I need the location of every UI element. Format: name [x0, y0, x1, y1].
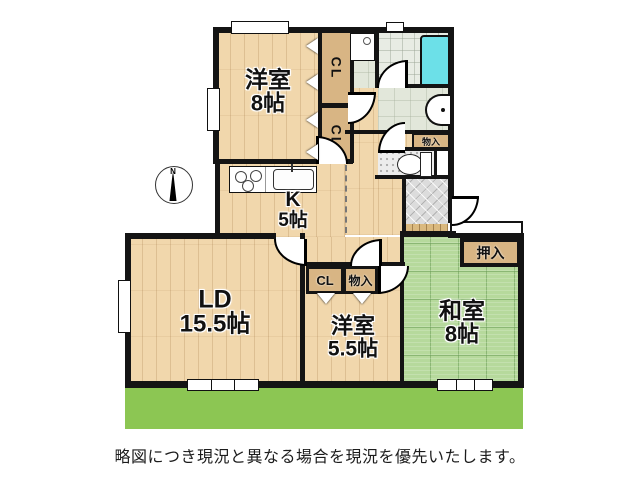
wall-yoshitsu55-washitsu	[400, 237, 404, 383]
toilet-tank	[420, 152, 432, 177]
room-size: 5帖	[278, 211, 308, 231]
hallway-floor-lower	[378, 178, 405, 235]
vanity-basin	[425, 94, 450, 126]
label-washitsu: 和室 8帖	[439, 300, 485, 347]
window-ld-bottom	[187, 379, 259, 391]
kitchen-sink	[273, 169, 314, 190]
window-tick	[474, 380, 475, 390]
window-tick	[211, 380, 212, 390]
washroom-sink	[350, 33, 375, 61]
room-name: 洋室	[328, 316, 378, 339]
folding-door-icon	[306, 144, 318, 160]
disclaimer-caption: 略図につき現況と異なる場合を現況を優先いたします。	[0, 443, 640, 467]
faucet-icon	[291, 164, 293, 172]
folding-door-icon	[306, 74, 318, 90]
closet-cl-upper-label: CL	[328, 57, 344, 80]
folding-door-icon	[306, 38, 318, 54]
storage-hall: 物入	[343, 266, 378, 294]
room-name: LD	[180, 287, 251, 313]
label-yoshitsu8: 洋室 8帖	[245, 69, 291, 116]
window-washitsu-bottom	[437, 379, 493, 391]
compass-north-label: N	[154, 167, 192, 176]
stove-burner-icon	[242, 180, 254, 192]
room-size: 8帖	[245, 93, 291, 116]
wall-storage-toilet	[403, 147, 453, 151]
closet-cl-hall: CL	[306, 266, 344, 294]
window-ld-left	[118, 280, 131, 333]
label-ld: LD 15.5帖	[180, 287, 251, 338]
drain-dot	[441, 108, 445, 112]
compass: N	[154, 165, 194, 205]
window-bath-top	[386, 22, 404, 32]
wall-washitsu-right	[518, 233, 524, 388]
closet-oshiire: 押入	[460, 238, 521, 267]
closet-cl-hall-label: CL	[309, 269, 341, 291]
window-yoshitsu8-left	[207, 88, 220, 131]
stove-divider	[265, 167, 266, 192]
window-yoshitsu8-top	[231, 21, 289, 34]
faucet-icon	[363, 37, 371, 45]
folding-door-icon	[317, 293, 335, 304]
wall-toilet-alcove	[434, 150, 437, 177]
bathtub	[420, 35, 451, 88]
wall-porch-oshiire	[448, 233, 523, 238]
folding-door-icon	[353, 293, 371, 304]
room-size: 5.5帖	[328, 339, 378, 361]
wall-genkan-left	[402, 175, 406, 235]
wall-kitchen-left	[215, 159, 220, 239]
kitchen-hall-boundary	[345, 165, 347, 233]
room-name: 洋室	[245, 69, 291, 93]
stove-burner-icon	[250, 170, 262, 182]
label-yoshitsu55: 洋室 5.5帖	[328, 316, 378, 361]
storage-hall-label: 物入	[346, 269, 375, 291]
window-tick	[234, 380, 235, 390]
folding-door-icon	[306, 112, 318, 128]
room-name: K	[278, 189, 308, 211]
entrance-genkan-floor	[405, 178, 448, 224]
wall-kitchen-ld	[125, 233, 276, 239]
room-size: 15.5帖	[180, 313, 251, 338]
room-size: 8帖	[439, 324, 485, 347]
floor-plan: CL CL 物入 CL 物入 押入	[0, 0, 640, 480]
closet-oshiire-label: 押入	[464, 242, 517, 263]
window-tick	[456, 380, 457, 390]
wall-toilet-genkan	[375, 175, 453, 179]
garden-strip	[125, 387, 523, 429]
label-kitchen: K 5帖	[278, 189, 308, 231]
room-name: 和室	[439, 300, 485, 324]
